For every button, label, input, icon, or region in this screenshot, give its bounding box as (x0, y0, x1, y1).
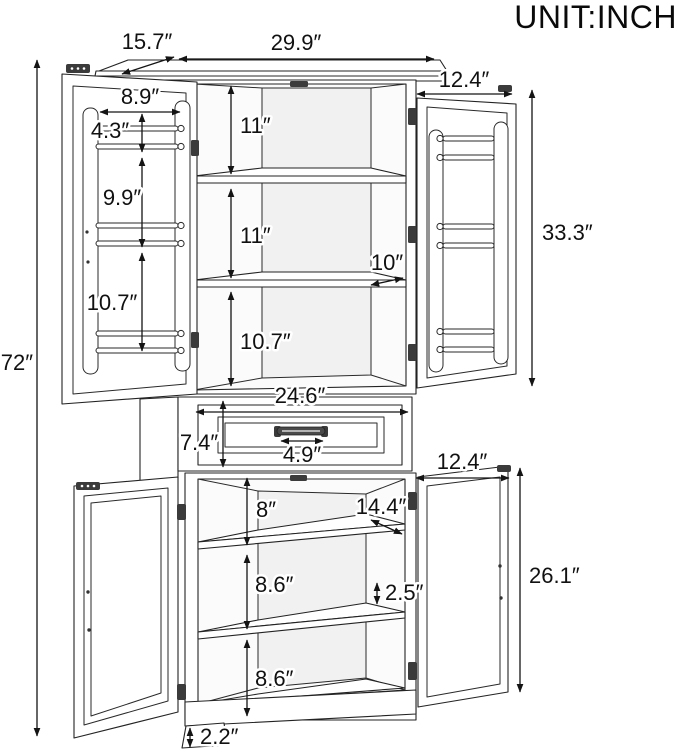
dim-top-depth-label: 15.7″ (122, 29, 173, 54)
top-board (94, 60, 447, 81)
lower-right-hinge-1 (408, 492, 417, 510)
dim-lower-shelf-depth-label: 14.4″ (356, 494, 407, 519)
right-rack-rail-outer (494, 122, 508, 364)
dim-upper-comp1-label: 11″ (240, 113, 271, 138)
dim-rack1-label: 4.3″ (91, 118, 130, 143)
dim-top-width-label: 29.9″ (271, 30, 322, 55)
dim-shelf-clearance-label: 2.5″ (385, 580, 424, 605)
dim-drawer-height-label: 7.4″ (180, 430, 219, 455)
upper-right-hinge-1 (408, 108, 417, 125)
lower-left-hinge-1 (177, 504, 186, 520)
upper-left-hinge-2 (191, 332, 199, 348)
dim-upper-height-label: 33.3″ (542, 220, 593, 245)
lower-right-door-corner-hardware (497, 465, 511, 472)
lower-right-door (418, 465, 511, 707)
dim-lower-comp2-label: 8.6″ (255, 572, 294, 597)
dim-rack3-label: 10.7″ (87, 290, 138, 315)
dim-upper-comp3-label: 10.7″ (240, 329, 291, 354)
drawer-handle (274, 426, 328, 437)
right-rack-rail-inner (429, 130, 443, 372)
upper-right-hinge-3 (408, 344, 417, 361)
dim-rack2-label: 9.9″ (103, 185, 142, 210)
lower-left-hinge-2 (177, 684, 186, 700)
lower-left-door (74, 477, 186, 738)
dim-drawer-width-label: 24.6″ (275, 383, 326, 408)
upper-right-hinge-2 (408, 226, 417, 243)
dim-lower-comp3-label: 8.6″ (255, 666, 294, 691)
upper-right-door-corner-hardware (498, 85, 512, 92)
dim-lower-right-door-label: 12.4″ (437, 449, 488, 474)
dim-base-height-label: 2.2″ (200, 724, 239, 749)
lower-door-latch (290, 475, 307, 481)
dim-handle-width-label: 4.9″ (283, 442, 322, 467)
dim-upper-shelf-depth-label: 10″ (371, 250, 403, 275)
dim-upper-right-door-label: 12.4″ (439, 67, 490, 92)
upper-left-door (62, 64, 199, 404)
dim-overall-height-label: 72″ (1, 350, 33, 375)
lower-right-hinge-2 (408, 662, 417, 680)
product-dimension-diagram: 15.7″ 29.9″ 72″ 8.9″ 4.3″ 9.9″ 10.7″ 11″… (0, 0, 679, 754)
dim-left-door-width-label: 8.9″ (121, 84, 160, 109)
upper-left-hinge-1 (191, 140, 199, 156)
cabinet-diagram-canvas: 15.7″ 29.9″ 72″ 8.9″ 4.3″ 9.9″ 10.7″ 11″… (0, 0, 679, 754)
upper-door-latch (290, 81, 308, 87)
dim-lower-comp1-label: 8″ (256, 497, 276, 522)
dim-lower-height-label: 26.1″ (529, 563, 580, 588)
unit-label: UNIT:INCH (514, 0, 677, 35)
upper-right-door (417, 85, 516, 388)
dim-upper-comp2-label: 11″ (240, 223, 271, 248)
